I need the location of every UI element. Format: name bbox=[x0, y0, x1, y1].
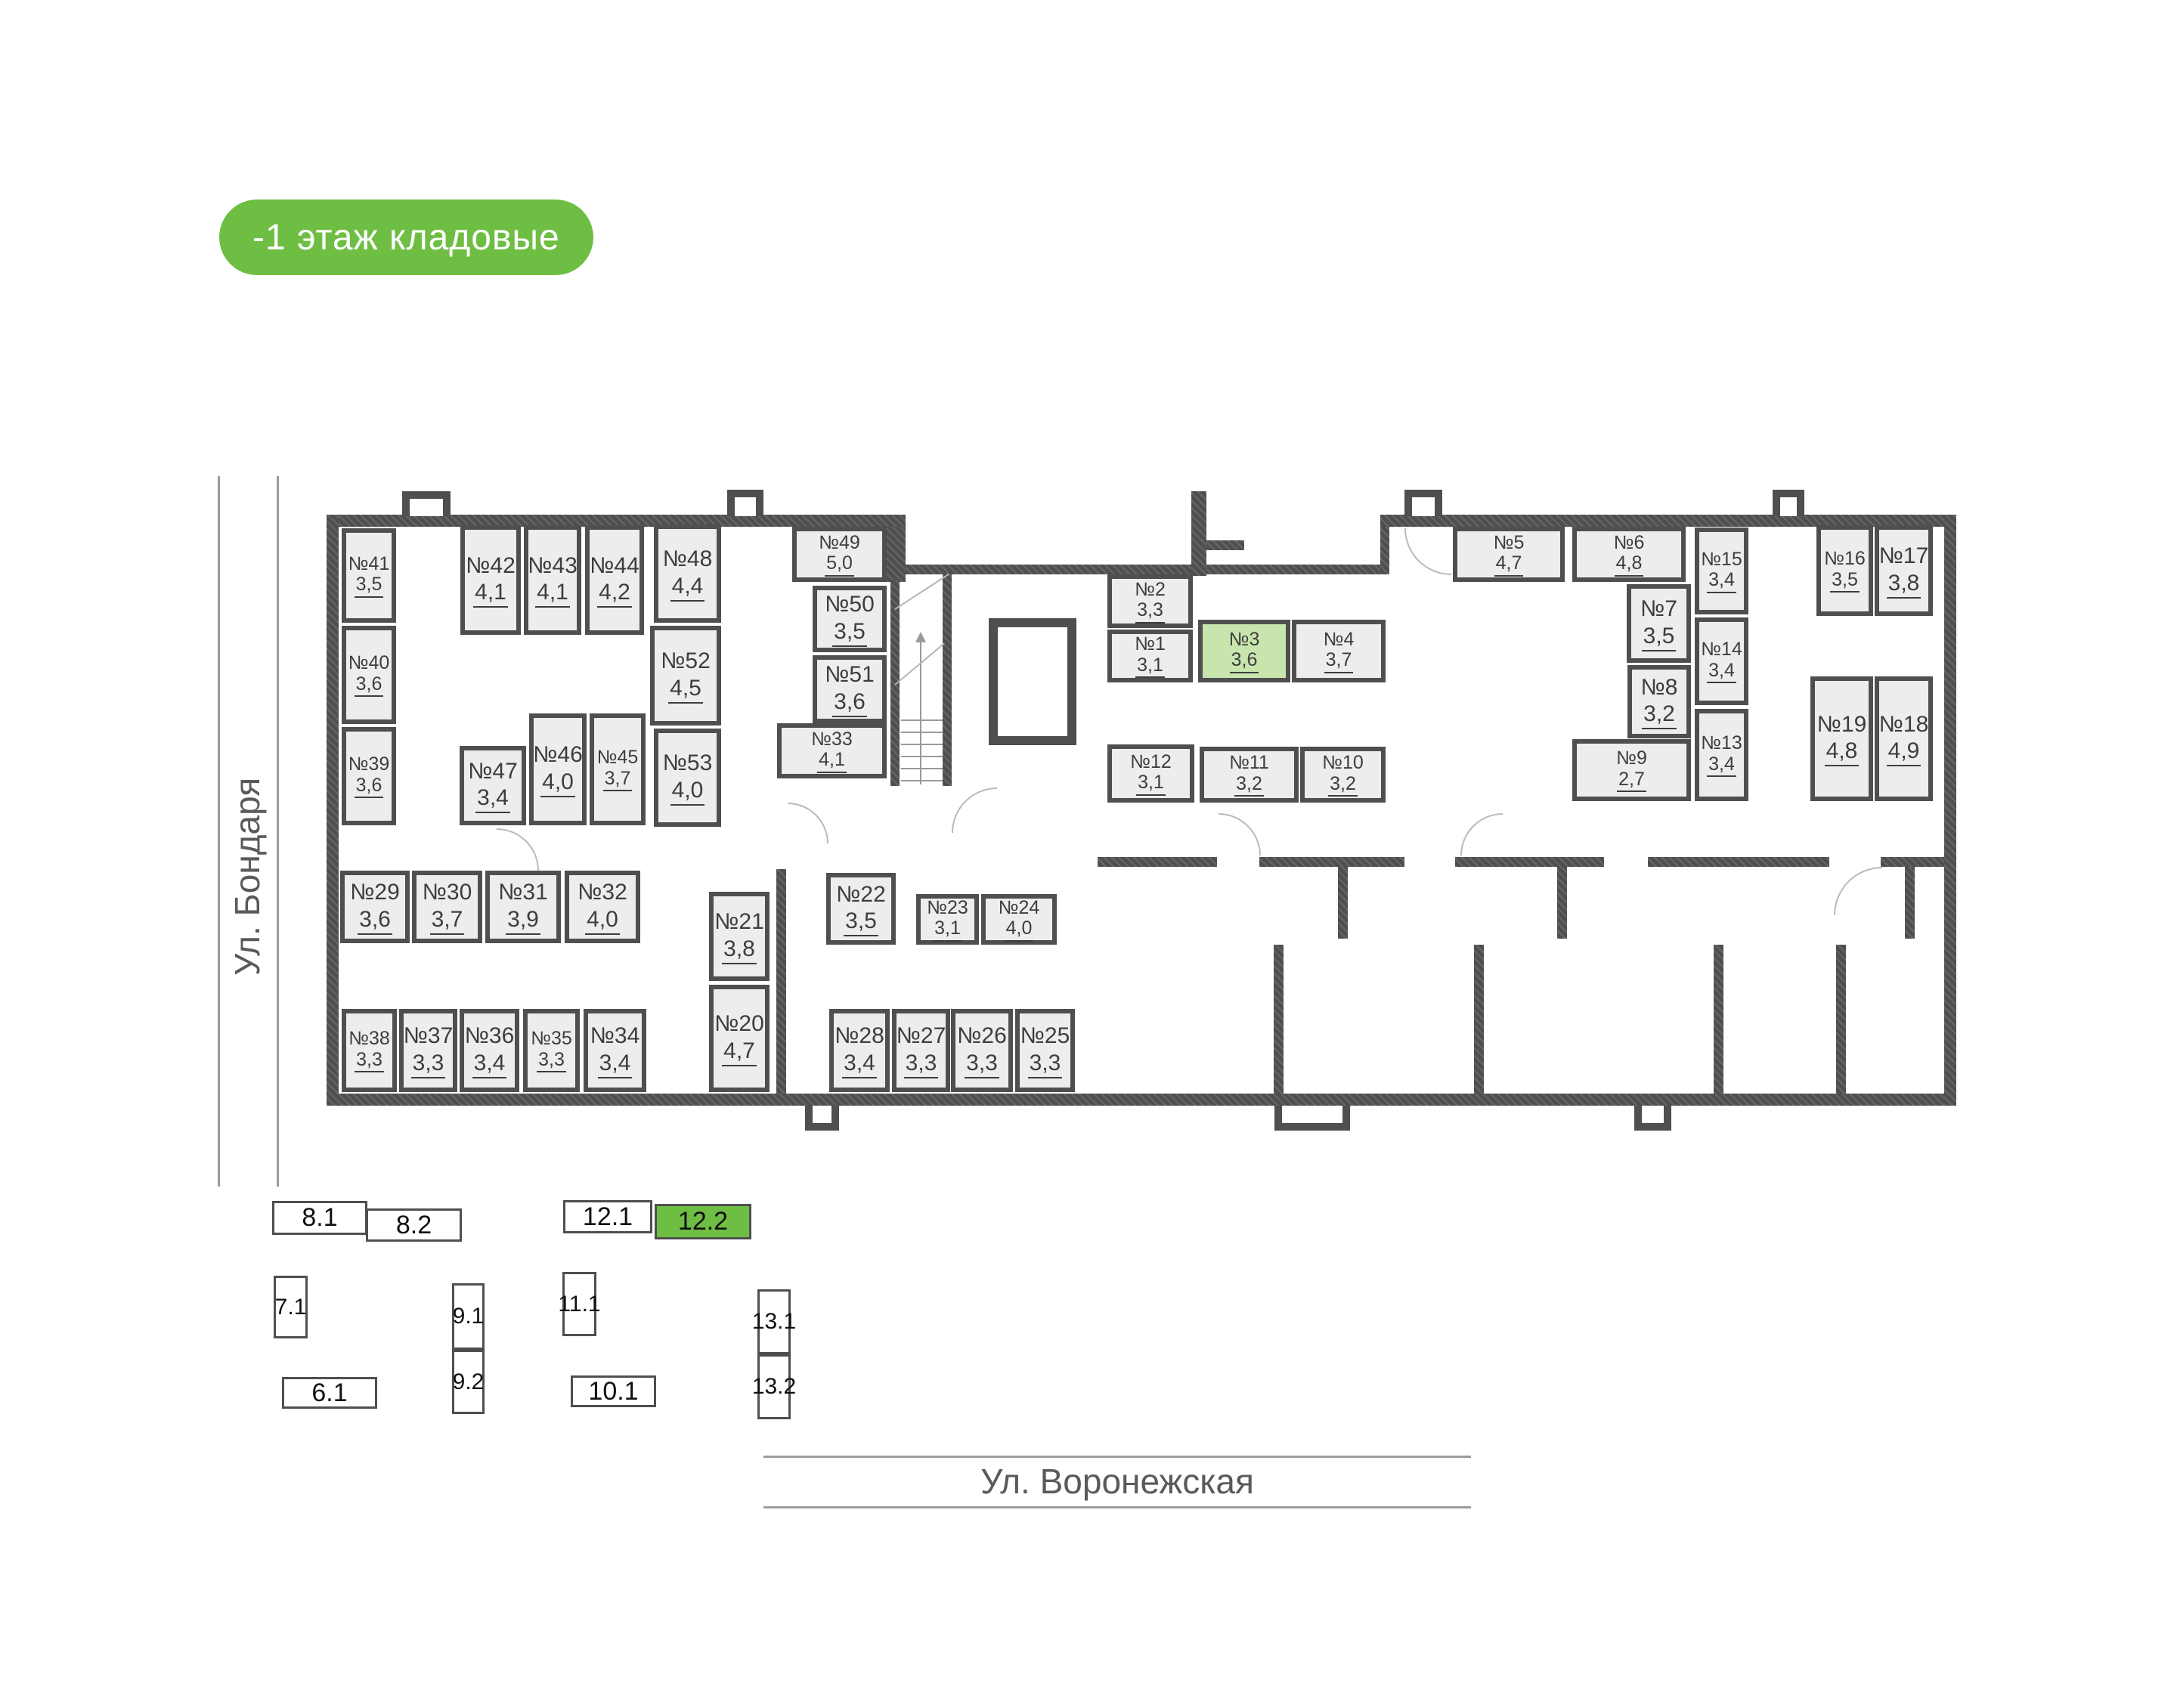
room-area: 3,5 bbox=[1642, 623, 1677, 651]
room-area: 4,4 bbox=[670, 573, 705, 602]
street-left-line-outer bbox=[218, 476, 220, 1187]
wall bbox=[1455, 857, 1604, 867]
street-left-label: Ул. Бондаря bbox=[224, 650, 271, 1103]
room-area: 3,6 bbox=[355, 775, 384, 799]
room-number: №28 bbox=[835, 1023, 884, 1049]
storage-room-49[interactable]: №495,0 bbox=[792, 527, 887, 582]
door-arc bbox=[1219, 813, 1261, 856]
storage-room-34[interactable]: №343,4 bbox=[584, 1009, 646, 1092]
storage-room-53[interactable]: №534,0 bbox=[654, 729, 721, 827]
storage-room-3[interactable]: №33,6 bbox=[1198, 620, 1290, 682]
room-number: №50 bbox=[825, 591, 875, 617]
storage-room-15[interactable]: №153,4 bbox=[1695, 528, 1748, 614]
room-number: №8 bbox=[1641, 674, 1678, 701]
door-arc bbox=[1404, 528, 1451, 575]
storage-room-29[interactable]: №293,6 bbox=[340, 871, 410, 943]
room-number: №5 bbox=[1494, 533, 1525, 554]
room-area: 4,0 bbox=[540, 769, 575, 797]
storage-room-5[interactable]: №54,7 bbox=[1453, 527, 1565, 582]
minimap-block-11.1[interactable]: 11.1 bbox=[562, 1272, 596, 1336]
bottom-protrusion bbox=[1634, 1106, 1671, 1131]
storage-room-47[interactable]: №473,4 bbox=[460, 746, 526, 825]
top-protrusion bbox=[727, 490, 763, 516]
wall bbox=[887, 527, 906, 582]
room-number: №34 bbox=[590, 1023, 640, 1049]
wall bbox=[1191, 491, 1206, 576]
room-number: №14 bbox=[1701, 639, 1742, 661]
minimap-block-12.2[interactable]: 12.2 bbox=[655, 1204, 751, 1239]
room-number: №9 bbox=[1616, 748, 1647, 769]
room-number: №7 bbox=[1640, 596, 1677, 622]
storage-room-30[interactable]: №303,7 bbox=[412, 871, 482, 943]
top-protrusion bbox=[1404, 490, 1442, 516]
room-area: 3,9 bbox=[506, 906, 540, 935]
top-protrusion bbox=[1773, 490, 1804, 516]
room-area: 3,2 bbox=[1234, 774, 1264, 797]
minimap-block-13.2[interactable]: 13.2 bbox=[757, 1354, 791, 1419]
room-number: №13 bbox=[1701, 733, 1742, 754]
wall bbox=[327, 1094, 1956, 1106]
room-number: №3 bbox=[1229, 630, 1260, 651]
wall bbox=[776, 869, 786, 1094]
room-number: №25 bbox=[1020, 1023, 1070, 1049]
room-area: 4,1 bbox=[535, 579, 570, 608]
storage-room-9[interactable]: №92,7 bbox=[1572, 739, 1691, 801]
wall bbox=[1557, 867, 1567, 939]
room-number: №2 bbox=[1135, 580, 1166, 601]
room-number: №45 bbox=[597, 747, 639, 769]
room-area: 3,2 bbox=[1642, 701, 1677, 729]
minimap-block-9.2[interactable]: 9.2 bbox=[452, 1350, 485, 1414]
minimap-block-8.1[interactable]: 8.1 bbox=[272, 1201, 367, 1235]
storage-room-35[interactable]: №353,3 bbox=[523, 1009, 580, 1092]
room-area: 3,3 bbox=[355, 1050, 384, 1073]
storage-room-32[interactable]: №324,0 bbox=[565, 871, 640, 943]
wall bbox=[1259, 857, 1404, 867]
room-area: 3,4 bbox=[475, 784, 510, 813]
room-area: 4,7 bbox=[722, 1038, 757, 1066]
street-left-line-inner bbox=[277, 476, 279, 1187]
room-number: №20 bbox=[714, 1010, 764, 1037]
room-number: №44 bbox=[590, 552, 639, 579]
room-area: 3,5 bbox=[844, 908, 878, 936]
minimap-block-9.1[interactable]: 9.1 bbox=[452, 1283, 485, 1350]
room-area: 3,1 bbox=[1135, 655, 1165, 679]
storage-room-6[interactable]: №64,8 bbox=[1572, 527, 1686, 582]
storage-room-20[interactable]: №204,7 bbox=[709, 985, 770, 1092]
storage-room-22[interactable]: №223,5 bbox=[826, 873, 896, 945]
wall bbox=[1648, 857, 1829, 867]
room-area: 3,6 bbox=[358, 906, 392, 935]
room-area: 3,1 bbox=[933, 918, 962, 942]
room-area: 3,8 bbox=[722, 936, 757, 964]
door-arc bbox=[1460, 813, 1503, 856]
room-number: №15 bbox=[1701, 549, 1742, 571]
room-area: 3,8 bbox=[1887, 570, 1922, 599]
room-area: 3,5 bbox=[832, 618, 867, 647]
storage-room-43[interactable]: №434,1 bbox=[524, 525, 581, 635]
room-number: №35 bbox=[531, 1029, 572, 1050]
elevator-shaft bbox=[989, 618, 1076, 745]
room-area: 4,5 bbox=[668, 675, 703, 704]
storage-room-10[interactable]: №103,2 bbox=[1300, 747, 1386, 803]
storage-room-33[interactable]: №334,1 bbox=[777, 723, 887, 778]
room-area: 4,0 bbox=[670, 777, 705, 806]
room-number: №12 bbox=[1130, 752, 1172, 773]
minimap-block-10.1[interactable]: 10.1 bbox=[571, 1375, 656, 1407]
room-number: №4 bbox=[1324, 630, 1355, 651]
storage-room-50[interactable]: №503,5 bbox=[813, 586, 887, 652]
storage-room-4[interactable]: №43,7 bbox=[1292, 620, 1386, 682]
room-number: №38 bbox=[348, 1029, 390, 1050]
minimap-block-13.1[interactable]: 13.1 bbox=[757, 1289, 791, 1354]
room-number: №23 bbox=[927, 898, 968, 919]
door-arc bbox=[952, 787, 997, 833]
storage-room-51[interactable]: №513,6 bbox=[813, 655, 887, 723]
room-area: 3,1 bbox=[1136, 772, 1166, 796]
room-area: 4,0 bbox=[585, 906, 620, 935]
storage-room-39[interactable]: №393,6 bbox=[342, 727, 396, 825]
storage-room-8[interactable]: №83,2 bbox=[1627, 665, 1691, 738]
room-area: 4,2 bbox=[597, 579, 632, 608]
storage-room-26[interactable]: №263,3 bbox=[951, 1009, 1013, 1092]
door-arc bbox=[497, 828, 539, 871]
wall bbox=[1905, 867, 1915, 939]
room-number: №53 bbox=[663, 750, 713, 776]
wall bbox=[327, 515, 339, 1106]
wall bbox=[897, 565, 1388, 574]
wall bbox=[1881, 857, 1944, 867]
room-area: 3,3 bbox=[904, 1050, 939, 1078]
room-area: 3,3 bbox=[537, 1050, 566, 1073]
room-number: №18 bbox=[1879, 711, 1929, 738]
wall bbox=[1098, 857, 1217, 867]
room-number: №16 bbox=[1824, 549, 1866, 570]
room-area: 3,3 bbox=[1135, 600, 1165, 623]
bottom-protrusion bbox=[805, 1106, 839, 1131]
room-area: 3,4 bbox=[598, 1050, 633, 1078]
room-area: 5,0 bbox=[825, 553, 854, 577]
room-area: 3,7 bbox=[1324, 650, 1354, 673]
room-number: №39 bbox=[348, 754, 390, 775]
storage-room-12[interactable]: №123,1 bbox=[1107, 744, 1194, 803]
room-area: 3,6 bbox=[355, 674, 384, 698]
storage-room-16[interactable]: №163,5 bbox=[1816, 525, 1873, 616]
wall bbox=[1474, 945, 1484, 1094]
room-area: 3,3 bbox=[1028, 1050, 1063, 1078]
room-number: №22 bbox=[836, 881, 886, 908]
room-area: 4,1 bbox=[473, 579, 508, 608]
room-area: 4,7 bbox=[1494, 553, 1524, 577]
wall bbox=[1714, 945, 1723, 1094]
wall bbox=[1836, 945, 1846, 1094]
room-number: №17 bbox=[1879, 543, 1929, 569]
room-number: №43 bbox=[528, 552, 578, 579]
room-area: 3,4 bbox=[842, 1050, 877, 1078]
room-area: 3,6 bbox=[1230, 650, 1259, 673]
storage-room-48[interactable]: №484,4 bbox=[654, 524, 721, 623]
storage-room-21[interactable]: №213,8 bbox=[709, 892, 770, 981]
room-number: №48 bbox=[663, 546, 713, 572]
storage-room-19[interactable]: №194,8 bbox=[1810, 676, 1873, 801]
storage-room-52[interactable]: №524,5 bbox=[650, 626, 721, 726]
room-number: №10 bbox=[1322, 753, 1364, 774]
minimap-block-7.1[interactable]: 7.1 bbox=[274, 1276, 308, 1338]
storage-room-31[interactable]: №313,9 bbox=[485, 871, 561, 943]
storage-room-2[interactable]: №23,3 bbox=[1107, 574, 1193, 628]
storage-room-41[interactable]: №413,5 bbox=[342, 528, 396, 623]
floorplan-page: { "badge": { "label": "-1 этаж кладовые"… bbox=[0, 0, 2177, 1708]
storage-room-46[interactable]: №464,0 bbox=[529, 713, 587, 825]
room-number: №26 bbox=[957, 1023, 1007, 1049]
storage-room-7[interactable]: №73,5 bbox=[1627, 584, 1691, 663]
room-number: №33 bbox=[811, 729, 853, 750]
storage-room-45[interactable]: №453,7 bbox=[590, 713, 646, 825]
storage-room-13[interactable]: №133,4 bbox=[1695, 709, 1748, 801]
door-arc bbox=[1834, 867, 1882, 915]
room-area: 4,9 bbox=[1887, 738, 1922, 766]
street-bottom-label: Ул. Воронежская bbox=[763, 1457, 1471, 1505]
room-area: 4,8 bbox=[1615, 553, 1644, 577]
storage-room-1[interactable]: №13,1 bbox=[1107, 630, 1193, 682]
storage-room-28[interactable]: №283,4 bbox=[829, 1009, 890, 1092]
wall bbox=[1274, 945, 1284, 1094]
room-area: 2,7 bbox=[1617, 769, 1646, 793]
room-number: №6 bbox=[1614, 533, 1645, 554]
room-area: 4,1 bbox=[817, 750, 847, 773]
minimap-block-6.1[interactable]: 6.1 bbox=[282, 1377, 377, 1409]
storage-room-18[interactable]: №184,9 bbox=[1875, 676, 1933, 801]
room-number: №42 bbox=[466, 552, 516, 579]
room-number: №41 bbox=[348, 554, 390, 575]
room-number: №37 bbox=[404, 1023, 454, 1049]
room-number: №19 bbox=[1817, 711, 1867, 738]
storage-room-17[interactable]: №173,8 bbox=[1875, 525, 1933, 616]
room-number: №24 bbox=[999, 898, 1040, 919]
storage-room-23[interactable]: №233,1 bbox=[916, 894, 979, 945]
room-area: 3,3 bbox=[965, 1050, 999, 1078]
room-area: 3,5 bbox=[1830, 570, 1860, 593]
room-number: №47 bbox=[468, 758, 518, 784]
bottom-protrusion bbox=[1274, 1106, 1350, 1131]
room-area: 4,8 bbox=[1825, 738, 1860, 766]
room-area: 3,7 bbox=[603, 769, 633, 792]
top-protrusion bbox=[402, 491, 451, 516]
staircase-up-arrow bbox=[915, 632, 926, 642]
wall bbox=[1380, 527, 1389, 574]
minimap-block-12.1[interactable]: 12.1 bbox=[563, 1200, 652, 1233]
room-area: 3,4 bbox=[1707, 570, 1736, 593]
storage-room-25[interactable]: №253,3 bbox=[1015, 1009, 1075, 1092]
room-number: №32 bbox=[578, 879, 627, 905]
room-number: №51 bbox=[825, 661, 875, 688]
storage-room-38[interactable]: №383,3 bbox=[342, 1009, 397, 1092]
room-number: №31 bbox=[498, 879, 548, 905]
room-number: №1 bbox=[1135, 634, 1166, 655]
room-number: №11 bbox=[1229, 753, 1269, 774]
storage-room-37[interactable]: №373,3 bbox=[399, 1009, 457, 1092]
room-area: 3,5 bbox=[355, 574, 384, 598]
wall bbox=[1206, 540, 1244, 550]
floor-badge: -1 этаж кладовые bbox=[219, 200, 593, 275]
storage-room-27[interactable]: №273,3 bbox=[892, 1009, 950, 1092]
room-number: №40 bbox=[348, 653, 390, 674]
storage-room-36[interactable]: №363,4 bbox=[460, 1009, 519, 1092]
room-area: 3,4 bbox=[472, 1050, 507, 1078]
wall bbox=[943, 572, 952, 786]
minimap-block-8.2[interactable]: 8.2 bbox=[366, 1208, 462, 1242]
room-number: №46 bbox=[533, 741, 583, 768]
room-number: №49 bbox=[819, 533, 860, 554]
room-area: 3,6 bbox=[832, 688, 867, 717]
room-area: 3,4 bbox=[1707, 661, 1736, 684]
storage-room-11[interactable]: №113,2 bbox=[1200, 747, 1299, 803]
room-area: 3,7 bbox=[430, 906, 465, 935]
wall bbox=[1944, 515, 1956, 1106]
staircase-treads bbox=[901, 719, 943, 784]
room-area: 3,4 bbox=[1707, 754, 1736, 778]
street-bottom-line-bottom bbox=[763, 1506, 1471, 1508]
storage-room-14[interactable]: №143,4 bbox=[1695, 617, 1748, 705]
room-number: №36 bbox=[465, 1023, 515, 1049]
room-area: 4,0 bbox=[1005, 918, 1034, 942]
storage-room-42[interactable]: №424,1 bbox=[460, 525, 521, 635]
room-area: 3,2 bbox=[1328, 774, 1358, 797]
room-number: №52 bbox=[661, 648, 711, 674]
room-number: №27 bbox=[897, 1023, 946, 1049]
room-number: №30 bbox=[423, 879, 472, 905]
room-number: №21 bbox=[714, 908, 764, 935]
wall bbox=[1338, 867, 1348, 939]
storage-room-24[interactable]: №244,0 bbox=[981, 894, 1057, 945]
door-arc bbox=[788, 803, 828, 843]
room-number: №29 bbox=[350, 879, 400, 905]
storage-room-44[interactable]: №444,2 bbox=[585, 525, 644, 635]
room-area: 3,3 bbox=[411, 1050, 446, 1078]
storage-room-40[interactable]: №403,6 bbox=[342, 626, 396, 724]
